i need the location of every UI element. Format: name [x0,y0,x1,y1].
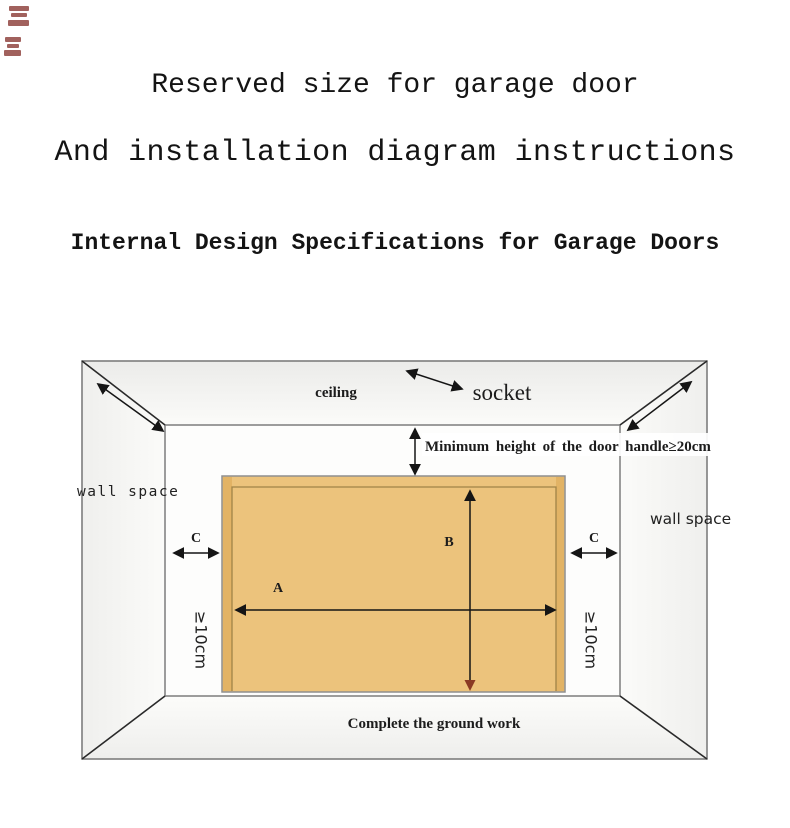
clearance-left-label: C [191,531,201,546]
ceiling-surface [82,361,707,425]
wall-space-right-label: wall space [650,510,731,528]
socket-label: socket [473,380,532,405]
wall-space-left-label: wall space [77,484,179,500]
installation-diagram: ceiling socket Minimum height of the doo… [0,0,790,828]
ceiling-label: ceiling [315,385,357,401]
side-clearance-left-label: ≥10cm [192,611,211,669]
clearance-right-label: C [589,531,599,546]
door-right-edge-strip [556,477,564,691]
door-width-label: A [273,581,284,596]
door-height-label: B [444,535,453,550]
right-wall-surface [620,361,707,759]
side-clearance-right-label: ≥10cm [582,611,601,669]
corner-stamp-bottom [4,37,21,56]
left-wall-surface [82,361,165,759]
corner-stamp-top [8,6,29,26]
min-height-label: Minimum height of the door handle≥20cm [425,439,711,455]
page: Reserved size for garage door And instal… [0,0,790,828]
ground-label: Complete the ground work [348,716,521,732]
door-left-edge-strip [223,477,232,691]
